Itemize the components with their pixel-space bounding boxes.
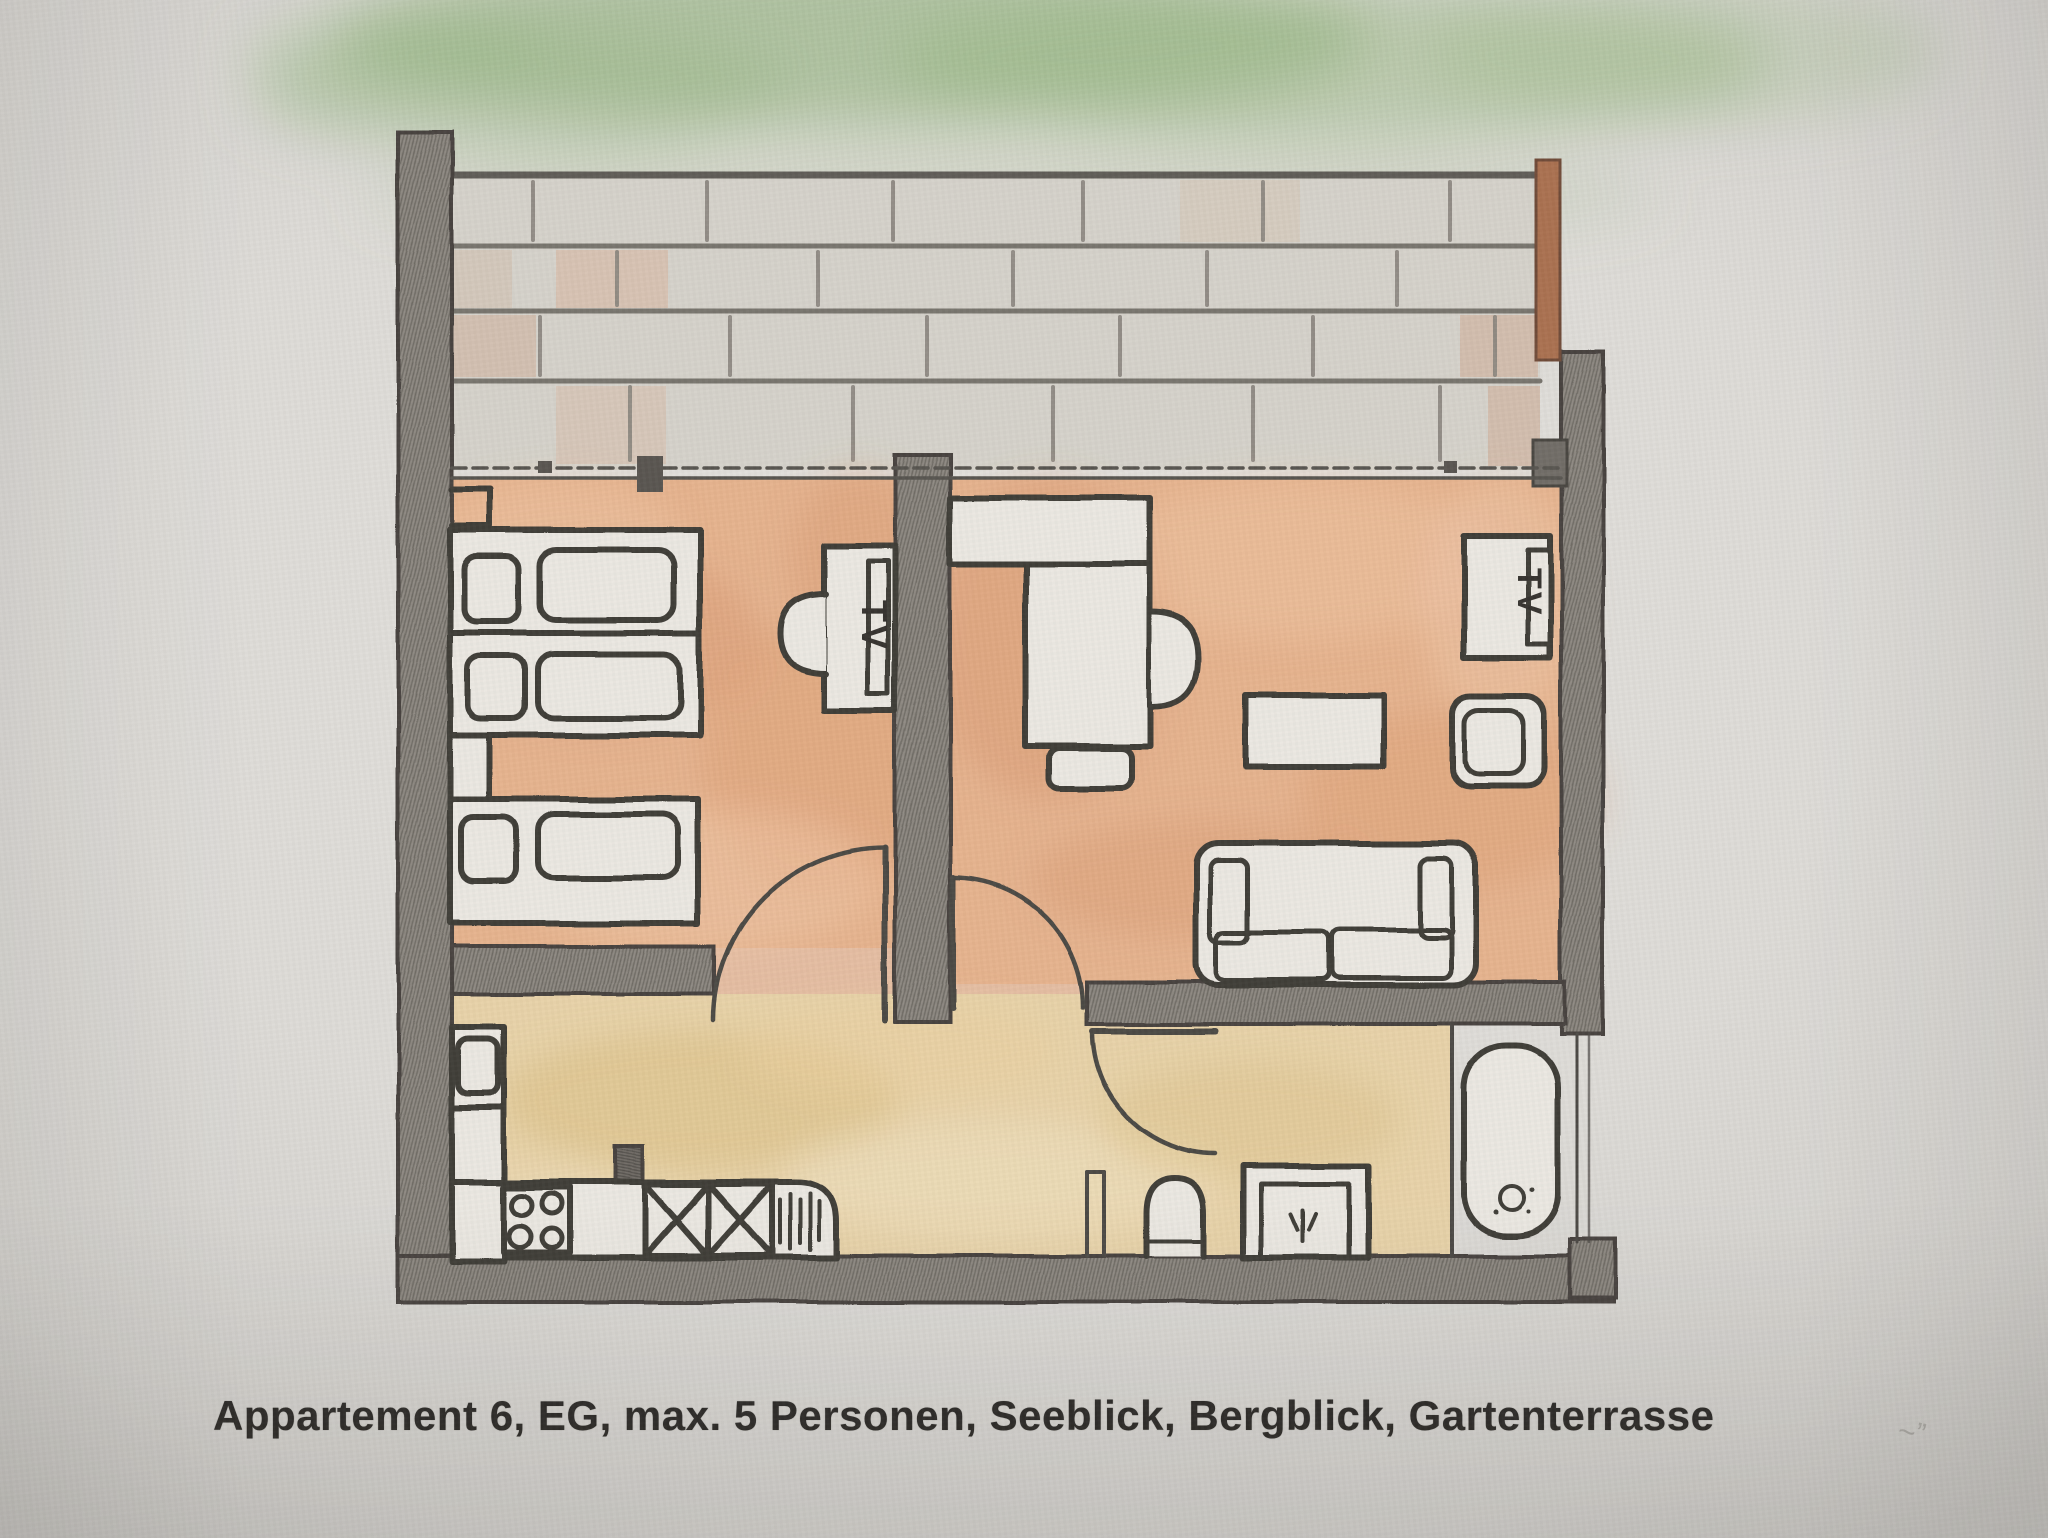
blanket-icon xyxy=(538,814,678,878)
outer-wall-left xyxy=(398,132,452,1302)
toilet xyxy=(1146,1178,1204,1256)
living-bottom-wall xyxy=(1087,982,1565,1024)
floor-plan-drawing: TV TV xyxy=(0,0,2048,1538)
floor-plan-photo: TV TV Appartement 6, EG, max. 5 Personen… xyxy=(0,0,2048,1538)
bedroom-bottom-wall xyxy=(452,946,714,994)
outer-wall-bottom xyxy=(398,1256,1614,1302)
bathtub xyxy=(1464,1046,1558,1236)
pillow-icon xyxy=(461,817,516,881)
terrace-paving xyxy=(452,175,1540,470)
pillow-icon xyxy=(464,556,519,622)
bedside-box xyxy=(450,735,490,799)
dining-chair-right xyxy=(1152,612,1198,706)
dining-bench xyxy=(950,498,1150,564)
coffee-table xyxy=(1246,696,1384,766)
tv-stool xyxy=(780,594,826,674)
sofa xyxy=(1196,843,1476,985)
caption-text: Appartement 6, EG, max. 5 Personen, Seeb… xyxy=(213,1392,1913,1440)
shower xyxy=(1243,1166,1368,1258)
kitchen-sink xyxy=(458,1038,498,1094)
blanket-icon xyxy=(538,654,680,718)
pillow-icon xyxy=(468,656,525,718)
tv-label-bedroom: TV xyxy=(854,600,895,652)
partition-wall-center xyxy=(895,455,950,1022)
dining-table xyxy=(1026,564,1150,746)
corner-post-bottom-right xyxy=(1570,1240,1616,1298)
blanket-icon xyxy=(540,550,674,620)
window-post xyxy=(637,456,663,492)
tv-label-living: TV xyxy=(1510,568,1548,617)
dining-chair-front xyxy=(1050,748,1132,788)
